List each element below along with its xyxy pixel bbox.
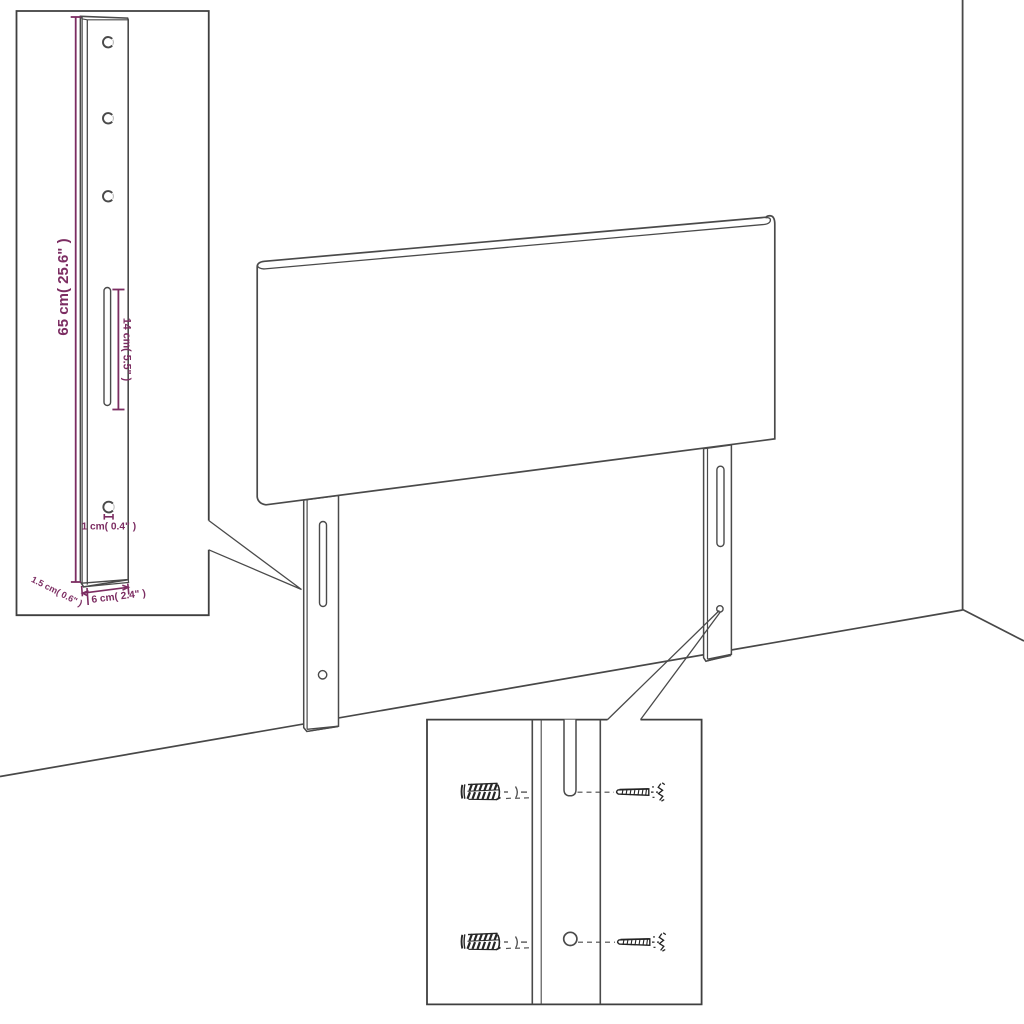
svg-text:65 cm( 25.6" ): 65 cm( 25.6" ): [55, 238, 72, 335]
svg-text:14 cm( 5.5" ): 14 cm( 5.5" ): [121, 318, 133, 382]
svg-text:1 cm( 0.4" ): 1 cm( 0.4" ): [81, 522, 136, 533]
